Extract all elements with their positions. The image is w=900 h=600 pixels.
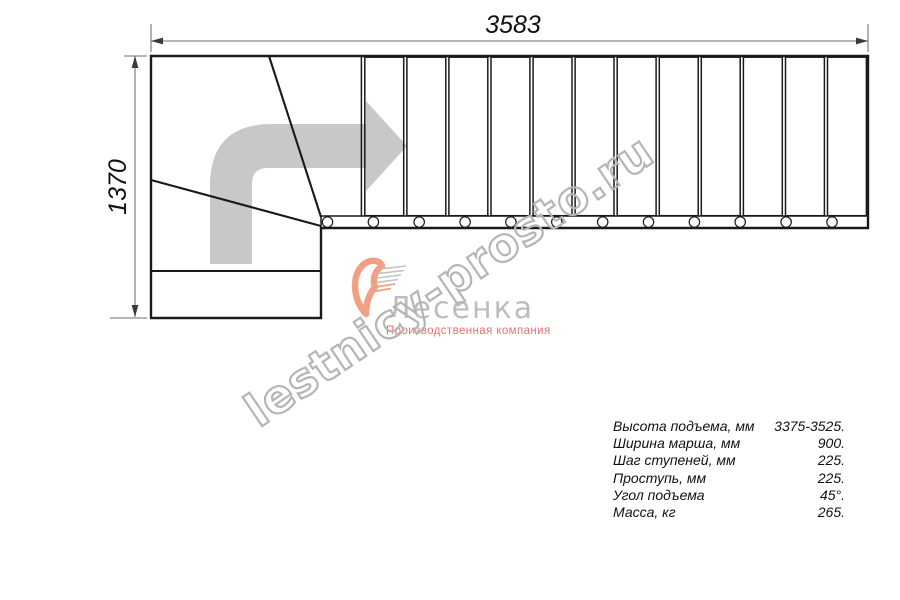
- spec-value: 265.: [818, 504, 845, 521]
- dimension-height: 1370: [104, 56, 147, 318]
- spec-label: Масса, кг: [613, 504, 676, 521]
- spec-label: Ширина марша, мм: [613, 435, 740, 452]
- baluster: [506, 217, 516, 227]
- dimension-height-label: 1370: [104, 159, 132, 215]
- spec-row: Ширина марша, мм 900.: [613, 435, 845, 452]
- tread-cell: [786, 57, 825, 216]
- spec-label: Проступь, мм: [613, 470, 706, 487]
- spec-value: 225.: [818, 452, 845, 469]
- spec-row: Масса, кг 265.: [613, 504, 845, 521]
- spec-value: 900.: [818, 435, 845, 452]
- tread-cell: [743, 57, 782, 216]
- tread-cell: [617, 57, 656, 216]
- logo-name: Лесенка: [388, 291, 534, 326]
- baluster: [598, 217, 608, 227]
- spec-label: Угол подъема: [613, 487, 705, 504]
- baluster: [827, 217, 837, 227]
- spec-row: Проступь, мм 225.: [613, 470, 845, 487]
- baluster: [689, 217, 699, 227]
- dimension-width: 3583: [151, 11, 868, 52]
- tread-cell: [407, 57, 446, 216]
- drawing-canvas: 3583 1370 Лесенка Производ: [0, 0, 900, 600]
- logo: Лесенка Производственная компания: [348, 255, 558, 345]
- baluster: [414, 217, 424, 227]
- tread-cell: [701, 57, 740, 216]
- spec-value: 3375-3525.: [774, 418, 845, 435]
- baluster: [460, 217, 470, 227]
- spec-table: Высота подъема, мм 3375-3525. Ширина мар…: [613, 418, 845, 521]
- spec-row: Угол подъема 45°.: [613, 487, 845, 504]
- baluster: [735, 217, 745, 227]
- spec-label: Шаг ступеней, мм: [613, 452, 736, 469]
- spec-value: 225.: [818, 470, 845, 487]
- baluster: [368, 217, 378, 227]
- treads-group: [365, 57, 867, 216]
- baluster: [643, 217, 653, 227]
- direction-arrow-icon: [210, 101, 407, 264]
- tread-cell: [491, 57, 530, 216]
- tread-cell: [828, 57, 867, 216]
- tread-cell: [575, 57, 614, 216]
- balusters-group: [322, 217, 837, 227]
- spec-row: Шаг ступеней, мм 225.: [613, 452, 845, 469]
- tread-cell: [659, 57, 698, 216]
- baluster: [781, 217, 791, 227]
- tread-cell: [449, 57, 488, 216]
- logo-tagline: Производственная компания: [386, 325, 551, 337]
- spec-value: 45°.: [820, 487, 845, 504]
- tread-cell: [533, 57, 572, 216]
- baluster: [552, 217, 562, 227]
- spec-label: Высота подъема, мм: [613, 418, 755, 435]
- dimension-width-label: 3583: [485, 11, 541, 39]
- baluster: [322, 217, 332, 227]
- spec-row: Высота подъема, мм 3375-3525.: [613, 418, 845, 435]
